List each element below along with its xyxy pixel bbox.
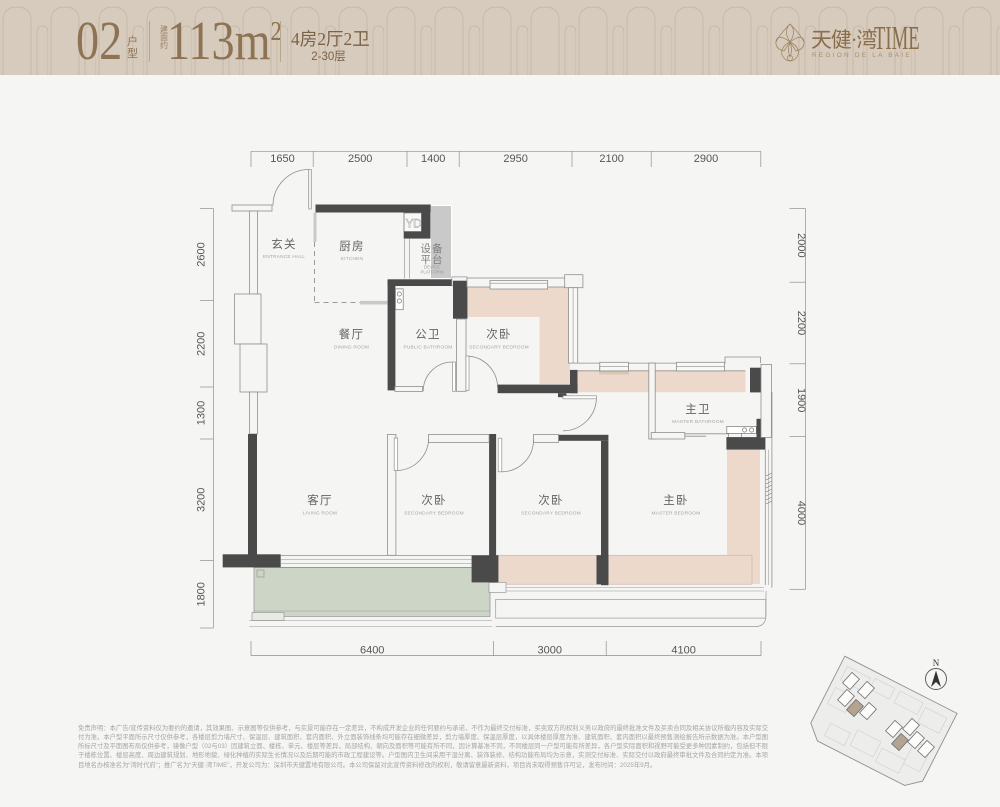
svg-text:4000: 4000 xyxy=(795,501,807,525)
svg-text:餐厅: 餐厅 xyxy=(339,327,364,341)
svg-text:次卧: 次卧 xyxy=(486,327,511,341)
svg-text:1900: 1900 xyxy=(795,388,807,412)
svg-text:YD: YD xyxy=(406,217,423,231)
svg-text:2500: 2500 xyxy=(348,153,372,165)
svg-text:2200: 2200 xyxy=(196,332,208,356)
svg-text:2600: 2600 xyxy=(196,242,208,266)
svg-text:3200: 3200 xyxy=(196,488,208,512)
svg-text:4100: 4100 xyxy=(671,645,695,657)
svg-text:2000: 2000 xyxy=(795,233,807,257)
svg-text:厨房: 厨房 xyxy=(339,240,364,253)
svg-text:次卧: 次卧 xyxy=(538,493,563,507)
svg-text:SECONDARY BEDROOM: SECONDARY BEDROOM xyxy=(521,511,581,517)
svg-text:1800: 1800 xyxy=(196,582,208,606)
svg-text:主卫: 主卫 xyxy=(685,403,710,416)
svg-text:MASTER BEDROOM: MASTER BEDROOM xyxy=(652,511,701,517)
svg-text:6400: 6400 xyxy=(360,645,384,657)
svg-text:主卧: 主卧 xyxy=(663,494,688,507)
svg-text:1300: 1300 xyxy=(196,401,208,425)
svg-text:公卫: 公卫 xyxy=(415,328,440,341)
svg-text:1400: 1400 xyxy=(421,153,445,165)
svg-text:KITCHEN: KITCHEN xyxy=(341,256,364,262)
svg-text:次卧: 次卧 xyxy=(421,493,446,507)
svg-text:MASTER BATHROOM: MASTER BATHROOM xyxy=(672,419,724,425)
svg-text:2200: 2200 xyxy=(795,311,807,335)
svg-text:客厅: 客厅 xyxy=(307,493,332,507)
svg-text:玄关: 玄关 xyxy=(271,237,296,251)
svg-text:DINING ROOM: DINING ROOM xyxy=(334,345,369,351)
svg-text:3000: 3000 xyxy=(538,645,562,657)
svg-text:ENTRANCE HALL: ENTRANCE HALL xyxy=(263,254,305,260)
svg-text:1650: 1650 xyxy=(270,153,294,165)
svg-text:SECONDARY BEDROOM: SECONDARY BEDROOM xyxy=(469,345,529,351)
svg-text:PUBLIC BATHROOM: PUBLIC BATHROOM xyxy=(403,345,452,351)
svg-text:N: N xyxy=(933,658,940,668)
svg-text:PLATFORM: PLATFORM xyxy=(420,270,443,275)
svg-text:LIVING ROOM: LIVING ROOM xyxy=(303,511,337,517)
svg-text:2100: 2100 xyxy=(599,153,623,165)
svg-text:2900: 2900 xyxy=(694,153,718,165)
svg-text:SECONDARY BEDROOM: SECONDARY BEDROOM xyxy=(404,511,464,517)
svg-text:2950: 2950 xyxy=(503,153,527,165)
